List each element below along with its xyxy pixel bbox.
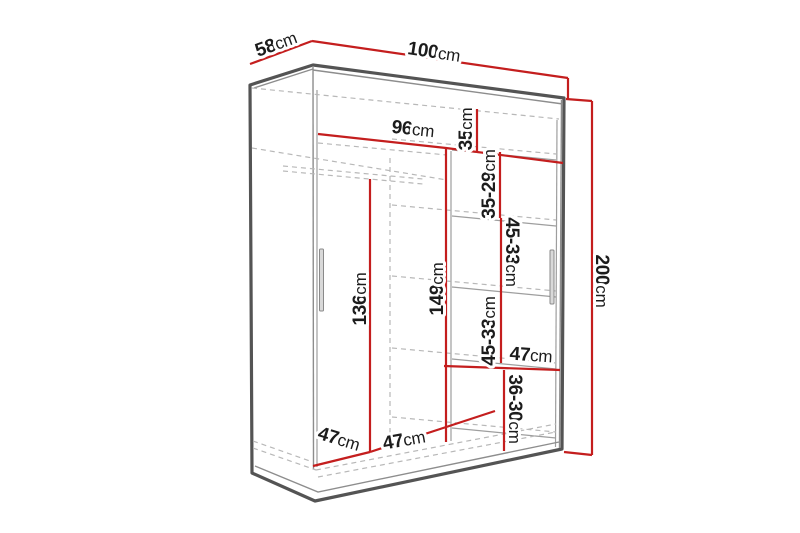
dimension-label-bottom-middle: 47cm xyxy=(381,426,427,454)
dimension-label-top-shelf: 35cm xyxy=(456,108,477,151)
dimension-label-mid-right-b: 45-33cm xyxy=(479,296,500,365)
dimension-label-width: 100cm xyxy=(406,38,462,67)
dimension-line-inner-width-96 xyxy=(318,134,563,163)
dimension-label-left-hanging: 136cm xyxy=(350,272,371,325)
top-shelf-back-edge xyxy=(318,143,447,155)
dimension-label-bottom-left: 47cm xyxy=(315,423,362,456)
dimension-label-depth: 58cm xyxy=(252,27,299,61)
dimension-tick-height-bottom xyxy=(564,452,592,455)
dimension-label-mid-right-a: 45-33cm xyxy=(502,217,523,286)
top-left-inner-edge xyxy=(254,69,313,88)
dimension-labels: 58cm 100cm 96cm 35cm 35-29cm 45-33cm 45-… xyxy=(252,27,612,456)
dimension-label-upper-right: 35-29cm xyxy=(479,149,500,218)
dimension-label-middle-hanging: 149cm xyxy=(427,262,448,315)
top-panel-inner-edge xyxy=(313,70,563,104)
dimension-line-bottom-left-47 xyxy=(313,452,370,466)
left-door-handle xyxy=(320,249,324,311)
right-door-handle xyxy=(550,250,554,304)
back-left-edge xyxy=(313,66,314,469)
dimension-label-inner-width: 96cm xyxy=(391,116,436,141)
dimension-label-lower-right: 36-30cm xyxy=(505,374,526,443)
dimension-label-shelf-width: 47cm xyxy=(509,343,553,367)
shelf-front-3 xyxy=(452,287,556,297)
wardrobe-dimension-diagram: 58cm 100cm 96cm 35cm 35-29cm 45-33cm 45-… xyxy=(0,0,800,533)
dimension-lines xyxy=(250,41,592,466)
right-door-edge xyxy=(556,120,558,447)
diagram-canvas: 58cm 100cm 96cm 35cm 35-29cm 45-33cm 45-… xyxy=(0,0,800,533)
dimension-label-height: 200cm xyxy=(592,254,613,307)
plinth-top-edge xyxy=(255,442,559,492)
floor-left-edge xyxy=(253,448,316,470)
dimension-tick-height-top xyxy=(566,99,592,101)
